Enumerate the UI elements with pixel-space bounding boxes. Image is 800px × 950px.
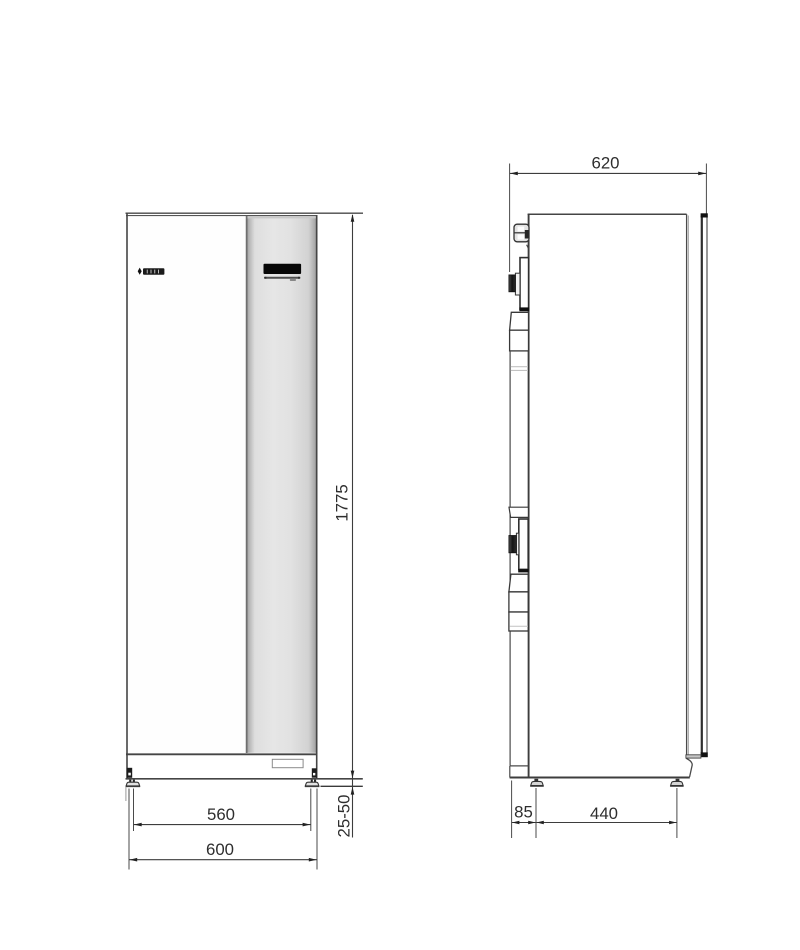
- svg-text:560: 560: [207, 805, 235, 824]
- svg-text:1775: 1775: [332, 484, 351, 521]
- svg-text:600: 600: [206, 840, 234, 859]
- svg-text:440: 440: [590, 804, 618, 823]
- svg-text:85: 85: [514, 803, 533, 822]
- svg-text:620: 620: [592, 154, 620, 173]
- svg-text:25-50: 25-50: [335, 795, 354, 838]
